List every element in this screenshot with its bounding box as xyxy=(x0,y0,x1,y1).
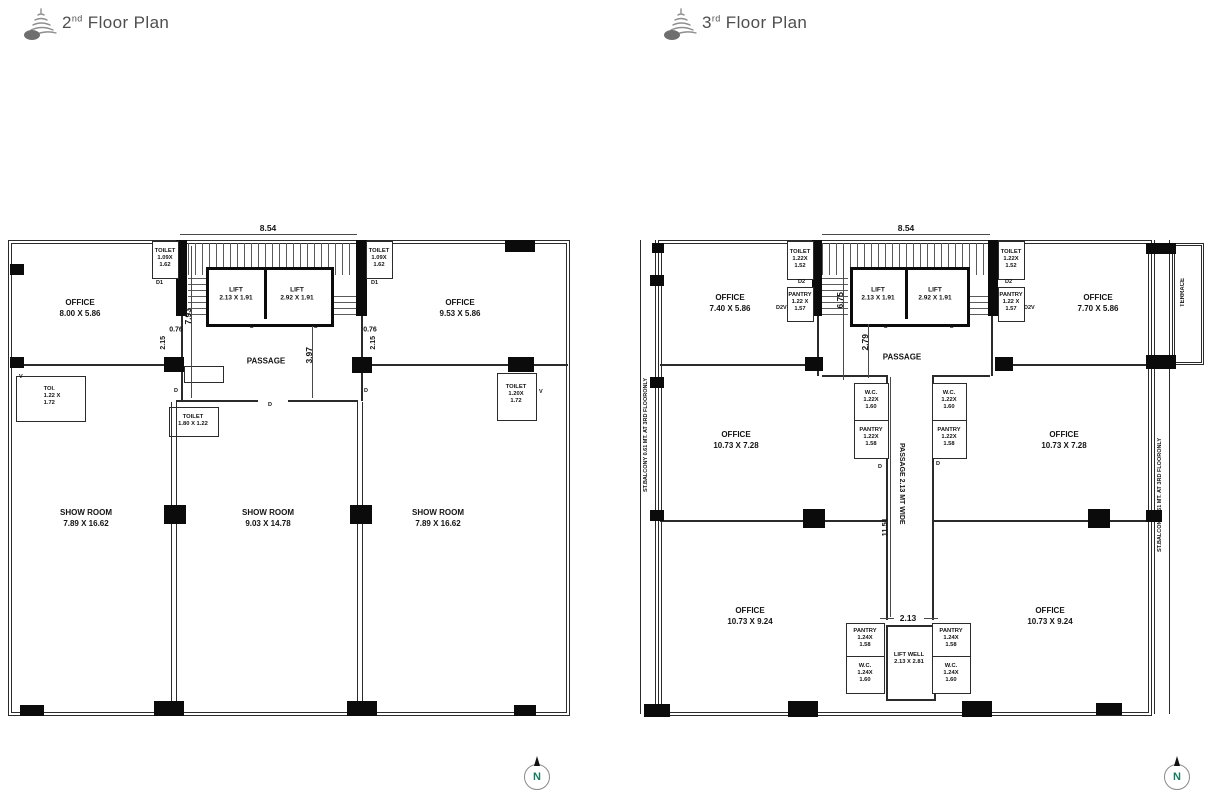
door-label: D2V xyxy=(776,305,787,311)
room-label-passage-wide: PASSAGE 2.13 MT WIDE xyxy=(898,443,905,525)
room-label-wc: W.C.1.24X1.60 xyxy=(943,663,958,685)
dim-line xyxy=(880,618,894,619)
column xyxy=(20,705,44,716)
door-label: D xyxy=(250,324,254,330)
room-label-pantry: PANTRY1.22X1.58 xyxy=(937,427,960,449)
column xyxy=(164,357,184,372)
wall xyxy=(932,520,1150,522)
dim-label: 0.76 xyxy=(169,327,183,334)
room-label-wc: W.C.1.22X1.60 xyxy=(863,390,878,412)
north-compass: N xyxy=(1164,764,1190,790)
room-label-toilet: TOILET1.22X1.52 xyxy=(790,249,811,271)
dim-label: 8.54 xyxy=(898,223,915,233)
room-label-pantry: PANTRY1.22 X1.57 xyxy=(999,292,1022,314)
door-label: D1 xyxy=(371,280,378,286)
lift-divider-wall xyxy=(905,269,908,319)
door-label: D xyxy=(268,402,272,408)
wall xyxy=(10,364,176,366)
wall-divider xyxy=(171,402,177,712)
wall-core-right xyxy=(988,240,998,316)
dim-label: 3.97 xyxy=(304,347,314,364)
column xyxy=(352,357,372,373)
north-label: N xyxy=(525,765,549,789)
title-number: 3 xyxy=(702,13,712,32)
room-label-showroom: SHOW ROOM9.03 X 14.78 xyxy=(242,508,294,530)
door-label: D xyxy=(950,324,954,330)
door-label: D2V xyxy=(1024,305,1035,311)
column xyxy=(650,510,664,521)
room-label-passage: PASSAGE xyxy=(247,357,286,368)
room-label-wc: W.C.1.22X1.60 xyxy=(941,390,956,412)
wall xyxy=(934,375,990,377)
builder-logo-icon xyxy=(663,6,699,42)
room-label-pantry: PANTRY1.24X1.58 xyxy=(939,628,962,650)
room-label-office: OFFICE10.73 X 9.24 xyxy=(1027,606,1072,628)
room-label-lift-well: LIFT WELL2.13 X 2.81 xyxy=(894,652,924,666)
dim-line xyxy=(180,234,357,235)
builder-logo-icon xyxy=(23,6,59,42)
balcony-label: ST.BALCONY 0.61 MT. AT 3RD FLOORONLY xyxy=(1157,438,1163,552)
column xyxy=(508,357,534,372)
page-title-2nd-floor: 2nd Floor Plan xyxy=(62,13,169,33)
room-label-pantry: PANTRY1.24X1.58 xyxy=(853,628,876,650)
room-label-terrace: TERRACE xyxy=(1180,278,1186,307)
column xyxy=(10,264,24,275)
wall xyxy=(369,364,568,366)
room-label-wc: W.C.1.24X1.60 xyxy=(857,663,872,685)
room-label-toi: TOI.1.22 X1.72 xyxy=(44,386,61,408)
room-label-lift: LIFT2.92 X 1.91 xyxy=(280,287,313,304)
room-label-toilet: TOILET1.22X1.52 xyxy=(1001,249,1022,271)
room-label-toilet: TOILET1.09X1.62 xyxy=(155,248,176,270)
balcony-label: ST.BALCONY 0.61 MT. AT 3RD FLOORONLY xyxy=(643,378,649,492)
wall xyxy=(660,364,812,366)
column xyxy=(962,701,992,717)
lift-divider-wall xyxy=(264,269,267,319)
door-label: D2 xyxy=(798,279,805,285)
column xyxy=(350,505,372,524)
wall-divider xyxy=(357,402,363,712)
door-label: V xyxy=(19,374,23,380)
column xyxy=(164,505,186,524)
column xyxy=(347,701,377,716)
column xyxy=(644,704,670,717)
title-text: Floor Plan xyxy=(721,13,808,32)
north-compass: N xyxy=(524,764,550,790)
north-label: N xyxy=(1165,765,1189,789)
column xyxy=(788,701,818,717)
column xyxy=(805,357,823,371)
door-label: D xyxy=(878,464,882,470)
column xyxy=(995,357,1013,371)
wall xyxy=(660,520,886,522)
room-label-office: OFFICE7.70 X 5.86 xyxy=(1078,293,1119,315)
dim-line xyxy=(868,324,869,378)
dim-label: 7.93 xyxy=(183,308,193,325)
column xyxy=(514,705,536,716)
column xyxy=(10,357,24,368)
room-label-toilet: TOILET1.80 X 1.22 xyxy=(178,414,208,428)
room-label-pantry: PANTRY1.22X1.58 xyxy=(859,427,882,449)
room-label-office: OFFICE10.73 X 9.24 xyxy=(727,606,772,628)
column xyxy=(650,377,664,388)
room-label-toilet: TOILET1.09X1.62 xyxy=(369,248,390,270)
room-label-showroom: SHOW ROOM7.89 X 16.62 xyxy=(60,508,112,530)
column xyxy=(652,243,664,253)
dim-label: 2.15 xyxy=(160,336,167,350)
room-label-pantry: PANTRY1.22 X1.57 xyxy=(788,292,811,314)
room-label-office: OFFICE9.53 X 5.86 xyxy=(440,298,481,320)
room-label-lift: LIFT2.92 X 1.91 xyxy=(918,287,951,304)
column xyxy=(1088,509,1110,528)
wall xyxy=(288,400,358,402)
room-label-toilet: TOILET1.20X1.72 xyxy=(506,384,527,406)
dim-label: 8.54 xyxy=(260,223,277,233)
column xyxy=(650,275,664,286)
title-text: Floor Plan xyxy=(83,13,170,32)
terrace xyxy=(1172,243,1204,365)
column xyxy=(803,509,825,528)
door-label: D xyxy=(884,324,888,330)
room-label-lift: LIFT2.13 X 1.91 xyxy=(219,287,252,304)
dim-label: 2.13 xyxy=(900,613,917,623)
room-label-office: OFFICE8.00 X 5.86 xyxy=(60,298,101,320)
door-label: D xyxy=(174,388,178,394)
wall xyxy=(176,400,258,402)
room-label-office: OFFICE7.40 X 5.86 xyxy=(710,293,751,315)
dim-line xyxy=(843,246,844,380)
room-label-passage: PASSAGE xyxy=(883,353,922,364)
door-label: D xyxy=(364,388,368,394)
title-ordinal: nd xyxy=(72,13,83,23)
door-label: D xyxy=(314,324,318,330)
dim-label: 2.15 xyxy=(370,336,377,350)
room-label-lift: LIFT2.13 X 1.91 xyxy=(861,287,894,304)
column xyxy=(1146,355,1176,369)
north-arrow-icon xyxy=(1174,756,1180,766)
wall xyxy=(991,316,993,376)
dim-line xyxy=(822,234,990,235)
door-label: D1 xyxy=(156,280,163,286)
dim-label: 11.51 xyxy=(880,518,889,536)
room-label-office: OFFICE10.73 X 7.28 xyxy=(713,430,758,452)
dim-label: 2.79 xyxy=(860,334,870,351)
dim-label: 6.75 xyxy=(835,292,845,309)
duct-box xyxy=(184,366,224,383)
dim-line xyxy=(924,618,938,619)
wall xyxy=(822,375,886,377)
door-label: V xyxy=(539,389,543,395)
column xyxy=(505,240,535,252)
door-label: D xyxy=(936,461,940,467)
column xyxy=(154,701,184,716)
dim-line xyxy=(890,377,891,617)
column xyxy=(1146,243,1176,254)
title-ordinal: rd xyxy=(712,13,721,23)
wall xyxy=(998,364,1150,366)
title-number: 2 xyxy=(62,13,72,32)
column xyxy=(1146,510,1162,522)
dim-label: 0.76 xyxy=(363,327,377,334)
room-label-showroom: SHOW ROOM7.89 X 16.62 xyxy=(412,508,464,530)
door-label: D2 xyxy=(1005,279,1012,285)
page-title-3rd-floor: 3rd Floor Plan xyxy=(702,13,807,33)
stairs-flight xyxy=(332,296,356,318)
room-label-office: OFFICE10.73 X 7.28 xyxy=(1041,430,1086,452)
north-arrow-icon xyxy=(534,756,540,766)
column xyxy=(1096,703,1122,715)
